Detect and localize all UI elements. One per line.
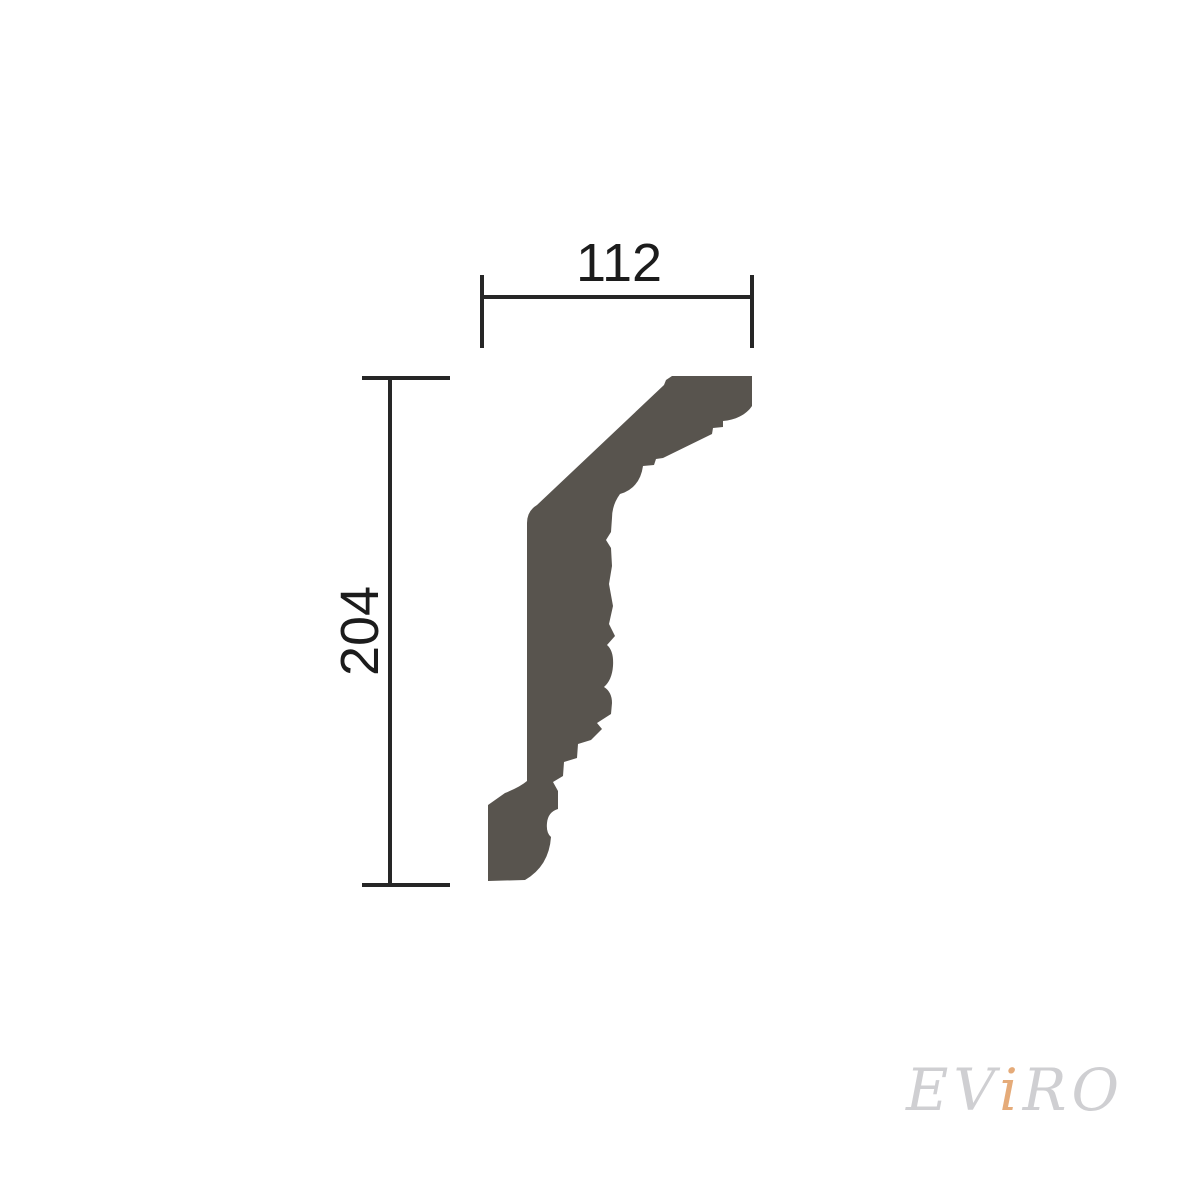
watermark-text-ev: EV — [906, 1056, 999, 1124]
width-dimension: 112 — [482, 233, 752, 348]
molding-profile-shape — [488, 376, 752, 881]
height-dimension: 204 — [330, 378, 450, 885]
watermark-text-ro: RO — [1023, 1056, 1124, 1124]
watermark-logo: EViRO — [906, 1056, 1166, 1124]
width-dimension-label: 112 — [576, 233, 662, 293]
molding-profile-diagram: 112 204 — [0, 0, 1182, 1182]
watermark-text-i: i — [999, 1056, 1023, 1124]
height-dimension-label: 204 — [330, 586, 390, 676]
diagram-canvas: 112 204 EViRO — [0, 0, 1182, 1182]
